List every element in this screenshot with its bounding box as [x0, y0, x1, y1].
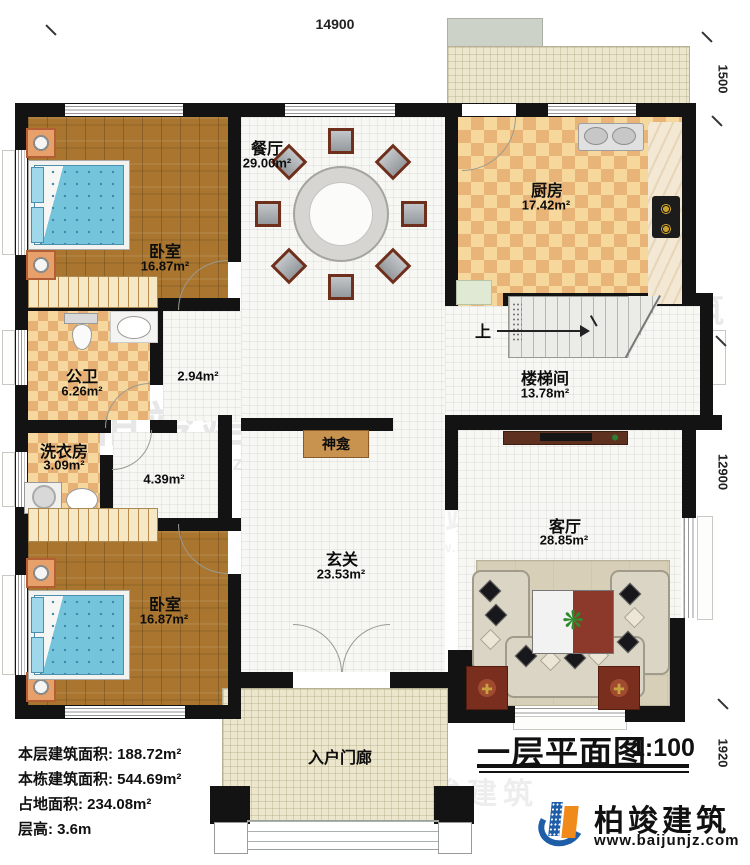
plant-icon: ❋ [558, 605, 588, 635]
wall-right-stairwell [700, 306, 713, 424]
stairs [508, 296, 628, 358]
wall-bedroom-top-right [228, 117, 241, 262]
room-area: 16.87m² [141, 259, 189, 274]
room-area: 23.53m² [317, 567, 365, 582]
bed-pillow [31, 207, 44, 243]
wardrobe [28, 508, 158, 542]
dimension-tick [701, 31, 712, 42]
title-underline-thin [479, 771, 689, 773]
dining-chair [328, 274, 354, 300]
wall-right-living [682, 430, 696, 518]
room-area: 16.87m² [140, 612, 188, 627]
window-sill [697, 516, 713, 620]
kitchen-sink-basin [612, 127, 636, 145]
nightstand [26, 128, 56, 158]
room-area: 3.09m² [43, 458, 84, 473]
wall-foyer-bottom-right [390, 672, 448, 688]
column-base [214, 822, 248, 854]
stairs-up-arrowhead [580, 325, 590, 337]
side-table-lamp: ✚ [598, 666, 640, 710]
bed-pillow [31, 167, 44, 203]
room-area: 29.00m² [243, 156, 291, 171]
window-sill [2, 452, 15, 507]
window-sill [2, 150, 15, 255]
wall-bedroom-bottom-right-b [228, 574, 241, 719]
nightstand [26, 558, 56, 588]
window [285, 104, 395, 116]
dimension-right-upper: 1500 [716, 65, 731, 94]
wall-bathroom-bottom [15, 420, 111, 433]
wall-right-kitchen [682, 103, 696, 306]
room-area: 28.85m² [540, 533, 588, 548]
info-value: 3.6m [57, 821, 91, 838]
wall-bedroom-bottom-right-a [228, 518, 241, 526]
info-line: 本栋建筑面积: 544.69m² [18, 767, 181, 792]
porch-column [434, 786, 474, 824]
wall-stairwell-bottom [445, 415, 722, 430]
info-value: 544.69m² [117, 771, 181, 788]
console-plant [610, 433, 620, 442]
window-sill [2, 575, 15, 675]
dimension-right-middle: 12900 [716, 454, 731, 490]
window [65, 706, 185, 718]
floor-plan-sheet: 柏竣建筑 www.baijunjz.com 柏竣建筑 www.baijunjz.… [0, 0, 750, 865]
porch-steps [247, 820, 439, 850]
terrace [447, 46, 690, 106]
window [16, 575, 27, 675]
title-underline [477, 764, 689, 768]
kitchen-door-opening [462, 104, 516, 116]
wall-corridor-right [218, 415, 232, 518]
terrace-equipment-pad [447, 18, 543, 48]
info-label: 占地面积: [18, 796, 83, 813]
bathroom-sink [117, 316, 151, 339]
dimension-tick [717, 698, 728, 709]
info-line: 占地面积: 234.08m² [18, 792, 181, 817]
info-line: 本层建筑面积: 188.72m² [18, 742, 181, 767]
window [16, 150, 27, 255]
room-area: 13.78m² [521, 386, 569, 401]
dining-table-top [309, 182, 373, 246]
washing-machine-drum [32, 485, 56, 509]
info-line: 层高: 3.6m [18, 817, 181, 842]
stairs-up-label: 上 [475, 318, 491, 342]
room-area: 2.94m² [177, 369, 218, 384]
kitchen-sink-basin [584, 127, 608, 145]
room-area: 17.42m² [522, 198, 570, 213]
window-living-right [681, 518, 696, 618]
side-table-lamp: ✚ [466, 666, 508, 710]
wall-dining-kitchen [445, 103, 458, 306]
shrine-label: 神龛 [322, 434, 350, 454]
dining-chair [255, 201, 281, 227]
stairs-dots [512, 302, 522, 342]
dining-chair [328, 128, 354, 154]
stove-burner [659, 202, 673, 216]
window [16, 330, 27, 385]
sheet-scale: 1:100 [631, 734, 695, 763]
dimension-right-lower: 1920 [716, 739, 731, 768]
tv [540, 433, 592, 441]
window [548, 104, 636, 116]
toilet-tank [64, 313, 98, 324]
window [65, 104, 183, 116]
bed-pillow [31, 597, 44, 633]
wall-foyer-living-stub [445, 430, 458, 510]
info-value: 234.08m² [87, 796, 151, 813]
logo-url: www.baijunjz.com [594, 832, 739, 849]
window-sill [2, 330, 15, 385]
info-label: 本栋建筑面积: [18, 771, 113, 788]
column-base [438, 822, 472, 854]
bed-mattress [34, 165, 124, 245]
info-block: 本层建筑面积: 188.72m² 本栋建筑面积: 544.69m² 占地面积: … [18, 742, 181, 842]
stairs-up-arrow-line [497, 330, 581, 332]
kitchen-mat [456, 280, 492, 305]
bed-pillow [31, 637, 44, 673]
wardrobe [28, 276, 158, 308]
dimension-top: 14900 [316, 16, 355, 32]
wall-bathroom-corner [150, 420, 177, 433]
hall-floor [163, 311, 241, 421]
room-area: 6.26m² [61, 384, 102, 399]
bed-mattress [34, 595, 124, 675]
stove-burner [659, 222, 673, 236]
dimension-tick [45, 24, 56, 35]
logo-icon [536, 800, 586, 848]
nightstand [26, 250, 56, 280]
room-area: 4.39m² [143, 472, 184, 487]
info-value: 188.72m² [117, 746, 181, 763]
porch-column [210, 786, 250, 824]
dimension-tick [711, 115, 722, 126]
info-label: 本层建筑面积: [18, 746, 113, 763]
dining-chair [401, 201, 427, 227]
info-label: 层高: [18, 821, 53, 838]
room-label: 入户门廊 [308, 744, 372, 768]
entry-door-opening [293, 672, 390, 688]
